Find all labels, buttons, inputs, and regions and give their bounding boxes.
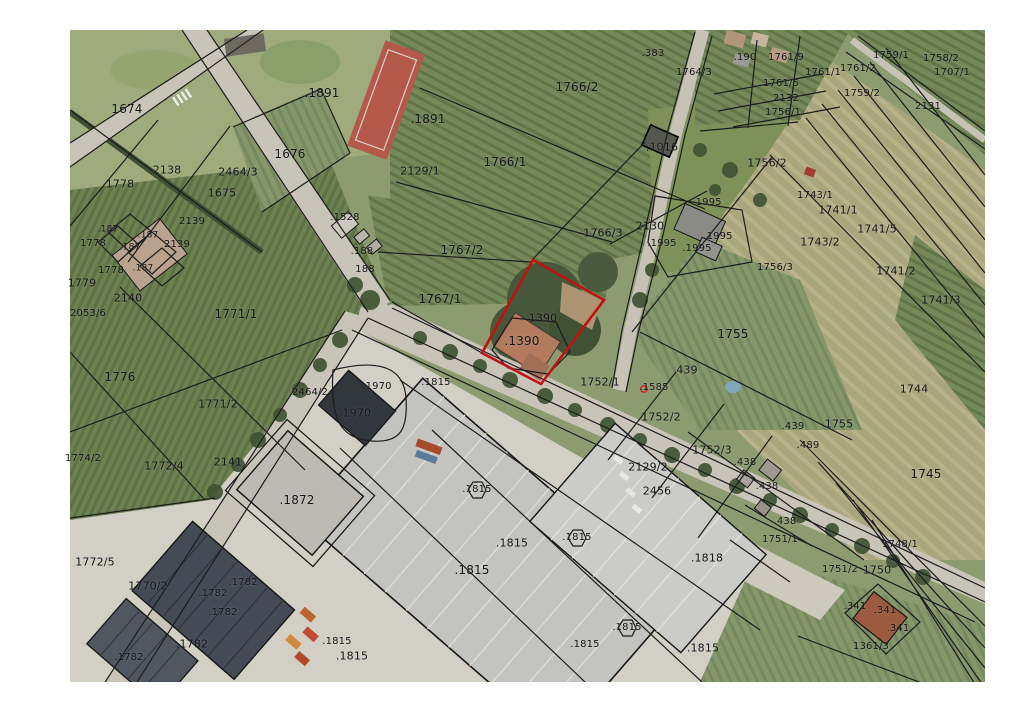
map-canvas[interactable] — [0, 0, 1024, 724]
cadastral-map-page: .3831764/3.1901761/91761/11761/21759/117… — [0, 0, 1024, 724]
